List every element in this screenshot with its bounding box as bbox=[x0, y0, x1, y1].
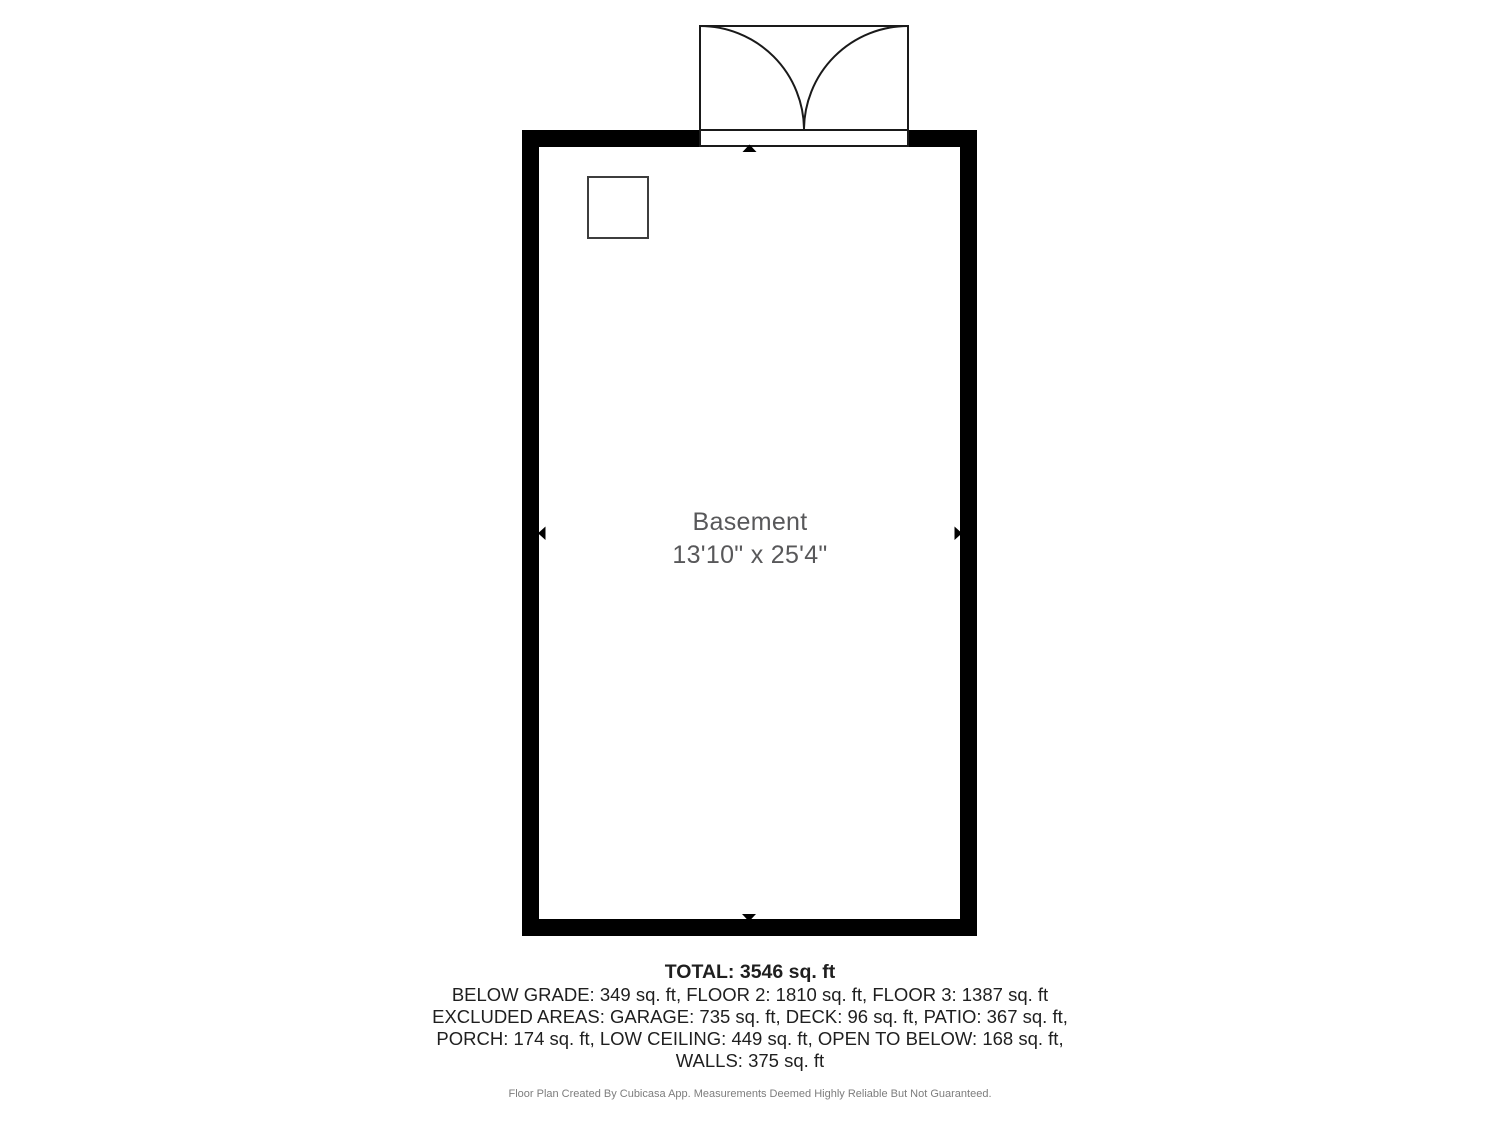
summary-line: PORCH: 174 sq. ft, LOW CEILING: 449 sq. … bbox=[0, 1028, 1500, 1050]
floor-plan-page: Basement 13'10" x 25'4" TOTAL: 3546 sq. … bbox=[0, 0, 1500, 1125]
total-area: TOTAL: 3546 sq. ft bbox=[0, 961, 1500, 984]
summary-line: WALLS: 375 sq. ft bbox=[0, 1050, 1500, 1072]
area-summary: TOTAL: 3546 sq. ft BELOW GRADE: 349 sq. … bbox=[0, 961, 1500, 1072]
room-label: Basement 13'10" x 25'4" bbox=[0, 506, 1500, 572]
square-column bbox=[588, 177, 648, 238]
summary-line: BELOW GRADE: 349 sq. ft, FLOOR 2: 1810 s… bbox=[0, 984, 1500, 1006]
room-name: Basement bbox=[0, 506, 1500, 539]
summary-line: EXCLUDED AREAS: GARAGE: 735 sq. ft, DECK… bbox=[0, 1006, 1500, 1028]
door-opening bbox=[700, 130, 908, 146]
room-dimensions: 13'10" x 25'4" bbox=[0, 539, 1500, 572]
disclaimer: Floor Plan Created By Cubicasa App. Meas… bbox=[0, 1087, 1500, 1101]
double-door-icon bbox=[700, 26, 908, 130]
